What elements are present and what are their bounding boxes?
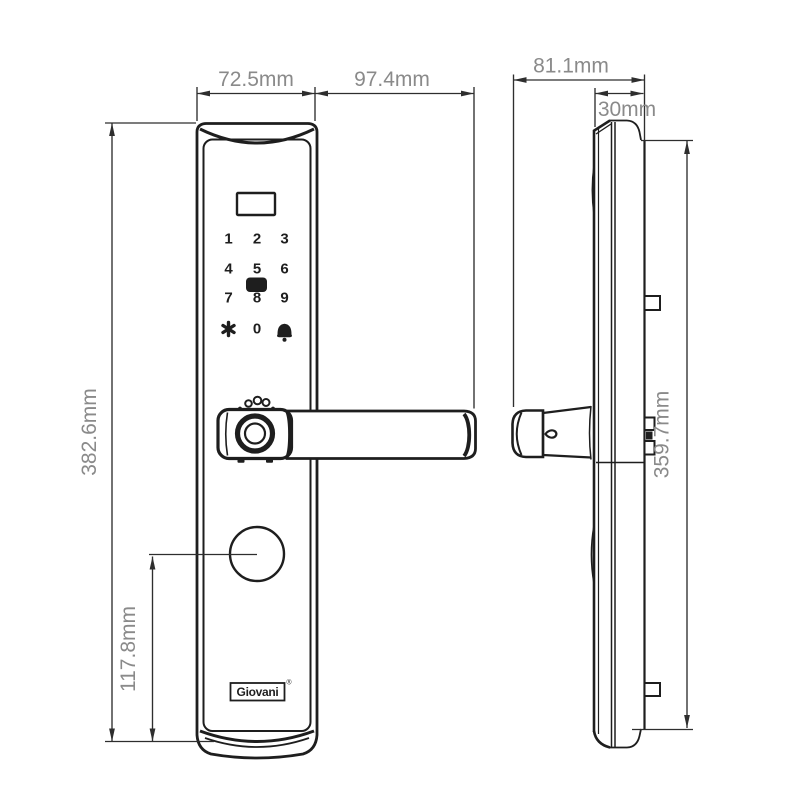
dim-rear-plate-height: 359.7mm: [632, 141, 693, 730]
front-view: 1 2 3 4 5 6 7 8 9 0: [149, 124, 476, 759]
dim-front-height-label: 382.6mm: [78, 388, 101, 476]
side-handle-flange: [590, 406, 592, 460]
brand-name: Giovani: [237, 685, 279, 699]
keypad-key-5[interactable]: 5: [253, 261, 261, 278]
keypad-key-0[interactable]: 0: [253, 321, 261, 338]
side-handle-stem-top: [543, 407, 591, 413]
side-handle: [513, 406, 645, 463]
dimension-annotations: 72.5mm 97.4mm 81.1mm 30mm: [78, 55, 693, 742]
side-view: [513, 121, 661, 748]
lock-technical-drawing-page: 1 2 3 4 5 6 7 8 9 0: [0, 0, 800, 800]
latch-bolt-top: [645, 296, 661, 310]
dim-front-height: 382.6mm: [78, 123, 214, 742]
latch-bolt-bottom: [645, 683, 661, 696]
handle-bar[interactable]: [287, 411, 476, 459]
grip-base-foot-left: [238, 459, 245, 463]
dim-keyhole-height: 117.8mm: [117, 557, 155, 742]
side-handle-keyhole-drop: [546, 430, 557, 437]
grip-base-foot-right: [266, 459, 273, 463]
keypad-key-1[interactable]: 1: [224, 231, 232, 248]
dim-mortise-depth-label: 30mm: [598, 98, 656, 121]
dim-handle-length-label: 97.4mm: [354, 68, 430, 91]
card-sensor-block: [246, 278, 267, 293]
dim-keyhole-height-label: 117.8mm: [117, 606, 140, 692]
side-handle-stem-bottom: [543, 455, 591, 458]
keypad-key-6[interactable]: 6: [280, 261, 288, 278]
dim-side-total-depth-label: 81.1mm: [533, 55, 609, 78]
side-front-cover: [592, 121, 642, 748]
keypad-key-2[interactable]: 2: [253, 231, 261, 248]
keypad-key-9[interactable]: 9: [280, 290, 288, 307]
keypad-key-8[interactable]: 8: [253, 290, 261, 307]
dim-front-width-label: 72.5mm: [218, 68, 294, 91]
brand-registered-mark: ®: [286, 679, 292, 687]
dim-handle-length: 97.4mm: [315, 68, 474, 409]
dim-front-width: 72.5mm: [197, 68, 315, 121]
dim-rear-plate-height-label: 359.7mm: [651, 391, 674, 479]
keypad-key-3[interactable]: 3: [280, 231, 288, 248]
fingerprint-scanner-ring[interactable]: [238, 416, 273, 451]
technical-drawing: 1 2 3 4 5 6 7 8 9 0: [0, 0, 800, 800]
keypad-key-4[interactable]: 4: [224, 261, 233, 278]
keypad-key-7[interactable]: 7: [224, 290, 232, 307]
